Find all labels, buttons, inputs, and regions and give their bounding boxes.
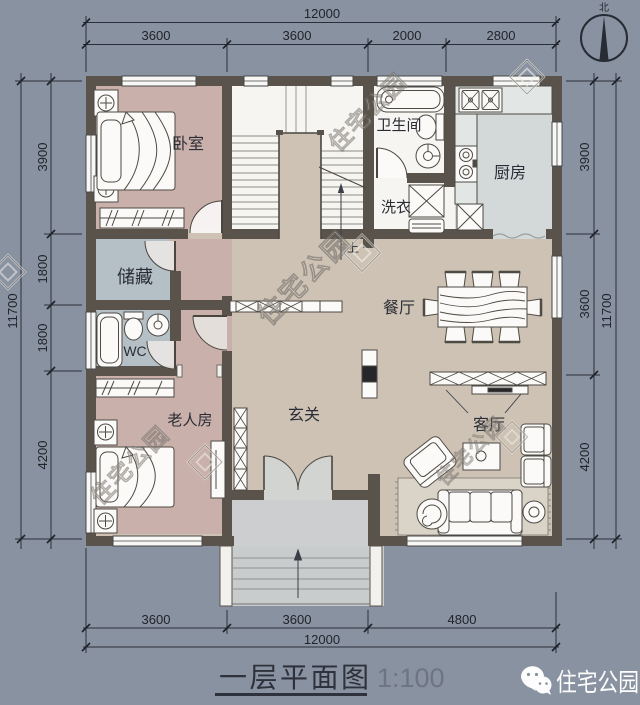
svg-text:4800: 4800	[448, 612, 477, 627]
svg-text:4200: 4200	[577, 443, 592, 472]
svg-text:1800: 1800	[35, 324, 50, 353]
svg-text:3900: 3900	[577, 143, 592, 172]
svg-text:储藏: 储藏	[117, 267, 153, 287]
svg-text:12000: 12000	[304, 6, 340, 21]
svg-text:1:100: 1:100	[377, 663, 445, 693]
svg-text:WC: WC	[123, 343, 146, 359]
svg-text:玄关: 玄关	[288, 406, 320, 424]
svg-text:2000: 2000	[393, 28, 422, 43]
svg-text:北: 北	[599, 2, 609, 14]
svg-text:住宅公园: 住宅公园	[556, 669, 639, 697]
svg-text:11700: 11700	[599, 293, 614, 328]
svg-text:3600: 3600	[283, 612, 312, 627]
svg-text:厨房: 厨房	[494, 164, 526, 182]
svg-text:3900: 3900	[35, 143, 50, 172]
svg-text:餐厅: 餐厅	[383, 299, 415, 317]
svg-text:2800: 2800	[487, 28, 516, 43]
svg-text:3600: 3600	[283, 28, 312, 43]
svg-text:4200: 4200	[35, 441, 50, 470]
svg-text:11700: 11700	[5, 293, 20, 328]
svg-text:3600: 3600	[142, 28, 171, 43]
svg-text:卧室: 卧室	[172, 135, 204, 153]
svg-text:卫生间: 卫生间	[376, 117, 421, 134]
svg-text:1800: 1800	[35, 255, 50, 284]
svg-text:3600: 3600	[142, 612, 171, 627]
svg-text:12000: 12000	[304, 632, 340, 647]
svg-text:3600: 3600	[577, 290, 592, 319]
svg-text:老人房: 老人房	[167, 412, 212, 429]
svg-text:洗衣: 洗衣	[381, 199, 411, 216]
svg-text:一层平面图: 一层平面图	[219, 662, 372, 693]
